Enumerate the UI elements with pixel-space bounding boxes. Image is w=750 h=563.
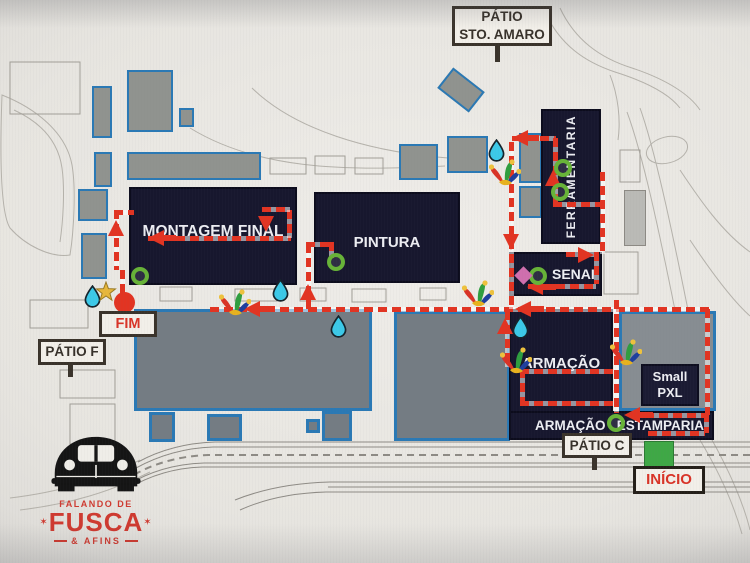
label-patio-f: PÁTIO F xyxy=(38,339,106,365)
building-gray xyxy=(127,70,173,132)
label-stem xyxy=(495,46,500,62)
jester-hat-icon xyxy=(219,289,251,316)
route-arrow-left xyxy=(512,130,528,146)
logo-star: ✶ xyxy=(39,517,48,528)
label-patio-sto-amaro: PÁTIO STO. AMARO xyxy=(452,6,552,46)
route-arrow-tail xyxy=(259,306,275,312)
route-segment xyxy=(262,207,290,212)
route-segment xyxy=(645,413,707,418)
route-segment xyxy=(705,309,710,415)
building-gray xyxy=(624,190,646,246)
logo-text: & AFINS xyxy=(71,536,121,546)
building-label-armacao: ARMAÇÃO xyxy=(535,418,606,433)
factory-map-photo: MONTAGEM FINAL PINTURA FERRAMENTARIA SEN… xyxy=(0,0,750,563)
building-label: Small xyxy=(653,369,688,385)
fim-marker xyxy=(114,292,135,313)
building-label: SENAI xyxy=(552,266,595,282)
route-segment xyxy=(520,369,525,403)
route-arrow-left xyxy=(515,301,531,317)
building-gray xyxy=(78,189,108,221)
route-segment xyxy=(210,307,710,312)
label-text: PÁTIO xyxy=(481,8,522,26)
falando-de-fusca-logo: FALANDO DE ✶FUSCA✶ & AFINS xyxy=(30,427,162,546)
checkpoint-ring-icon xyxy=(554,159,572,177)
building-center-slab xyxy=(394,311,510,441)
building-label: FERRAMENTARIA xyxy=(564,115,578,238)
route-segment xyxy=(594,252,599,284)
building-gray xyxy=(207,414,242,441)
logo-text-bottom: & AFINS xyxy=(30,536,162,546)
route-segment xyxy=(520,401,613,406)
logo-text-main: ✶FUSCA✶ xyxy=(30,509,162,536)
building-gray xyxy=(127,152,261,180)
route-arrow-down xyxy=(503,234,519,250)
label-text: FIM xyxy=(116,315,141,334)
building-gray xyxy=(322,411,352,441)
building-gray xyxy=(81,233,107,279)
route-segment xyxy=(553,202,603,207)
route-segment xyxy=(704,413,709,433)
route-arrow-up xyxy=(108,220,124,236)
beetle-car-icon xyxy=(46,427,146,493)
jester-hat-icon xyxy=(489,159,521,186)
building-gray xyxy=(519,186,542,218)
route-arrow-up xyxy=(300,284,316,300)
jester-hat-icon xyxy=(610,339,642,366)
jester-hat-icon xyxy=(500,347,532,374)
building-small-pxl: Small PXL xyxy=(641,364,699,406)
checkpoint-ring-icon xyxy=(607,414,625,432)
label-text: STO. AMARO xyxy=(459,26,545,44)
label-text: INÍCIO xyxy=(646,470,692,490)
building-gray xyxy=(179,108,194,127)
logo-dash xyxy=(125,540,138,542)
building-label: PXL xyxy=(657,385,682,401)
checkpoint-ring-icon xyxy=(131,267,149,285)
label-text: PÁTIO C xyxy=(570,437,625,455)
building-gray xyxy=(92,86,112,138)
route-arrow-left xyxy=(624,407,640,423)
building-gray xyxy=(399,144,438,180)
jester-hat-icon xyxy=(462,280,494,307)
route-arrow-left xyxy=(148,230,164,246)
logo-dash xyxy=(54,540,67,542)
route-segment xyxy=(287,210,292,238)
route-arrow-tail xyxy=(639,412,653,418)
route-segment xyxy=(648,431,705,436)
label-text: PÁTIO F xyxy=(45,343,98,361)
water-drop-icon xyxy=(272,279,289,302)
route-arrow-tail xyxy=(542,284,556,290)
route-arrow-tail xyxy=(163,235,176,241)
building-gray xyxy=(306,419,320,433)
label-stem xyxy=(592,457,597,470)
route-arrow-right xyxy=(578,247,594,263)
label-inicio: INÍCIO xyxy=(633,466,705,494)
route-arrow-up xyxy=(497,318,513,334)
logo-text: FUSCA xyxy=(49,507,144,537)
route-segment xyxy=(520,369,613,374)
checkpoint-ring-icon xyxy=(551,183,569,201)
label-fim: FIM xyxy=(99,311,157,337)
building-gray xyxy=(94,152,112,187)
water-drop-icon xyxy=(512,316,529,339)
building-gray xyxy=(447,136,488,173)
checkpoint-ring-icon xyxy=(327,253,345,271)
label-stem xyxy=(68,364,73,377)
route-segment xyxy=(600,172,605,254)
route-segment xyxy=(114,210,119,270)
route-arrow-tail xyxy=(530,306,544,312)
building-label: PINTURA xyxy=(354,234,421,251)
route-arrow-tail xyxy=(527,135,539,141)
route-arrow-down xyxy=(258,216,274,232)
logo-star: ✶ xyxy=(143,517,152,528)
water-drop-icon xyxy=(330,315,347,338)
label-patio-c: PÁTIO C xyxy=(562,433,632,458)
